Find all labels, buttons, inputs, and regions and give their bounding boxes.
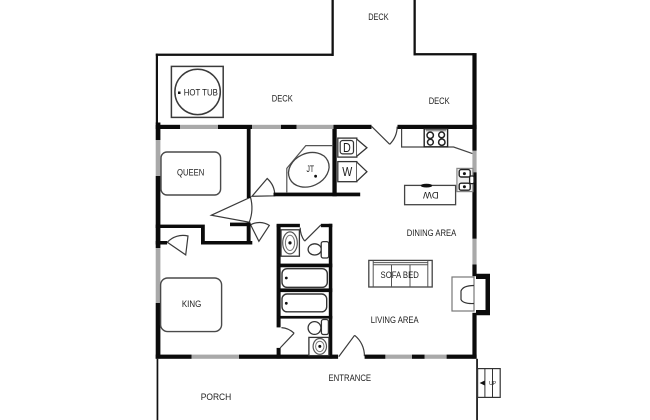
svg-text:LIVING AREA: LIVING AREA (371, 315, 419, 325)
svg-text:DECK: DECK (429, 96, 451, 106)
svg-text:D: D (343, 141, 351, 155)
svg-text:UP: UP (489, 381, 496, 387)
svg-text:QUEEN: QUEEN (177, 168, 204, 178)
svg-text:DECK: DECK (272, 93, 294, 103)
svg-text:HOT TUB: HOT TUB (184, 88, 218, 98)
svg-text:DECK: DECK (368, 12, 389, 22)
svg-text:DW: DW (423, 190, 439, 200)
svg-text:SOFA BED: SOFA BED (381, 270, 420, 280)
svg-text:KING: KING (182, 299, 201, 309)
svg-text:JT: JT (307, 164, 315, 174)
svg-text:DINING AREA: DINING AREA (407, 228, 457, 238)
svg-text:W: W (342, 165, 352, 179)
svg-text:PORCH: PORCH (201, 392, 232, 402)
svg-text:ENTRANCE: ENTRANCE (329, 373, 372, 383)
